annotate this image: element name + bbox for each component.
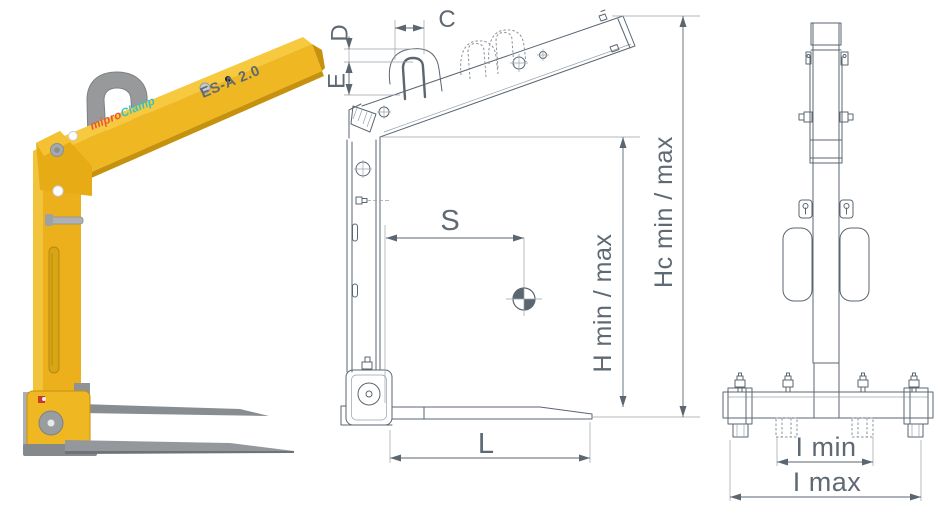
left-hanger-bracket: [783, 228, 812, 301]
mast-outline: [347, 104, 391, 372]
dimension-e: E: [324, 62, 401, 95]
dim-label-i-max: I max: [793, 467, 862, 497]
dim-label-h: H min / max: [589, 234, 617, 373]
beam-bolts: [735, 373, 919, 392]
datasheet-figure: ES-A 2.0 miproClamp: [0, 0, 950, 520]
dimension-c: C: [395, 6, 456, 60]
dim-label-d: D: [327, 24, 354, 41]
center-of-gravity-icon: [506, 288, 542, 316]
dim-label-l: L: [478, 428, 494, 460]
mast-hole: [53, 186, 63, 196]
dim-label-i-min: I min: [795, 432, 856, 462]
fork-tine-outline: [392, 407, 700, 419]
dimension-l: L: [390, 422, 590, 463]
mast-slot: [49, 247, 59, 373]
rear-fork-tine: [81, 404, 269, 416]
dimension-hc: Hc min / max: [612, 16, 700, 417]
lifting-eye-side-view: [389, 49, 442, 99]
dimension-h: H min / max: [382, 137, 640, 407]
front-base-beam: [723, 373, 933, 437]
dim-label-s: S: [440, 205, 459, 237]
front-fork-tine: [65, 440, 294, 451]
dim-label-e: E: [324, 73, 351, 89]
fork-assembly: [23, 383, 294, 456]
foot-outline: [341, 357, 392, 425]
dimension-s: S: [385, 205, 524, 403]
front-mast-outline: [783, 23, 869, 418]
dim-label-c: C: [438, 6, 455, 33]
center-block: [814, 363, 839, 418]
dim-label-hc: Hc min / max: [650, 136, 678, 288]
front-view-drawing: I min I max: [723, 23, 933, 501]
crane-fork-datasheet: ES-A 2.0 miproClamp: [0, 0, 950, 520]
right-hanger-bracket: [840, 228, 869, 301]
lifting-eye-alt-positions: [461, 30, 526, 79]
product-photo: ES-A 2.0 miproClamp: [23, 37, 325, 456]
beam-hole-white: [69, 132, 78, 141]
side-view-drawing: C D E S: [324, 6, 701, 463]
